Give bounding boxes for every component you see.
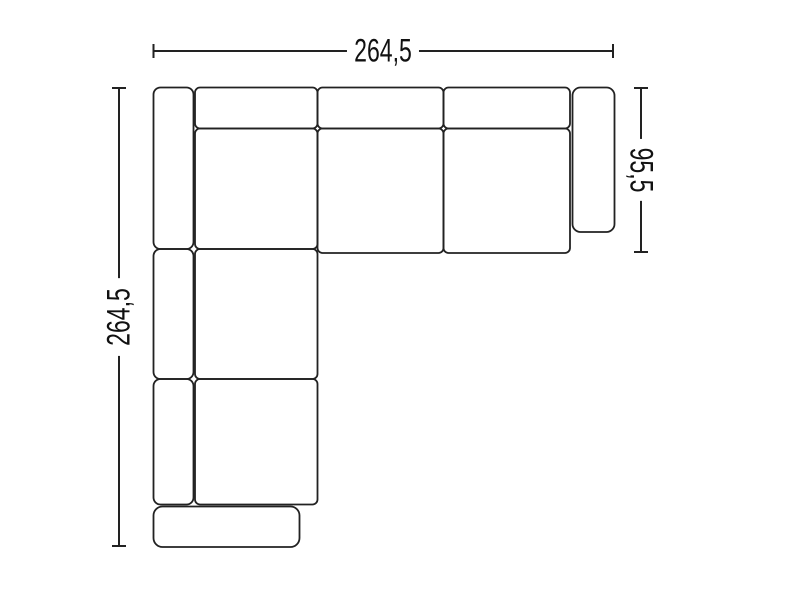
right-seat [444, 129, 571, 254]
dimension-lines [112, 44, 648, 546]
lower-seat-1 [195, 249, 318, 379]
left-backrest-bottom [154, 379, 194, 505]
dimension-label-left-depth: 264,5 [102, 278, 137, 356]
middle-seat [318, 129, 444, 254]
dimension-label-right-depth: 95,5 [624, 139, 659, 201]
bottom-armrest [154, 507, 300, 548]
lower-seat-2 [195, 379, 318, 505]
left-backrest-middle [154, 249, 194, 379]
dimension-label-top-width: 264,5 [347, 34, 419, 69]
corner-backrest [195, 88, 318, 129]
technical-drawing-canvas: 264,5 264,5 95,5 [0, 0, 800, 600]
sofa-modules [154, 88, 615, 548]
left-backrest-top [154, 88, 194, 250]
middle-seat-backrest [318, 88, 444, 129]
corner-seat [195, 129, 318, 250]
right-seat-backrest [444, 88, 571, 129]
right-armrest [573, 88, 615, 233]
